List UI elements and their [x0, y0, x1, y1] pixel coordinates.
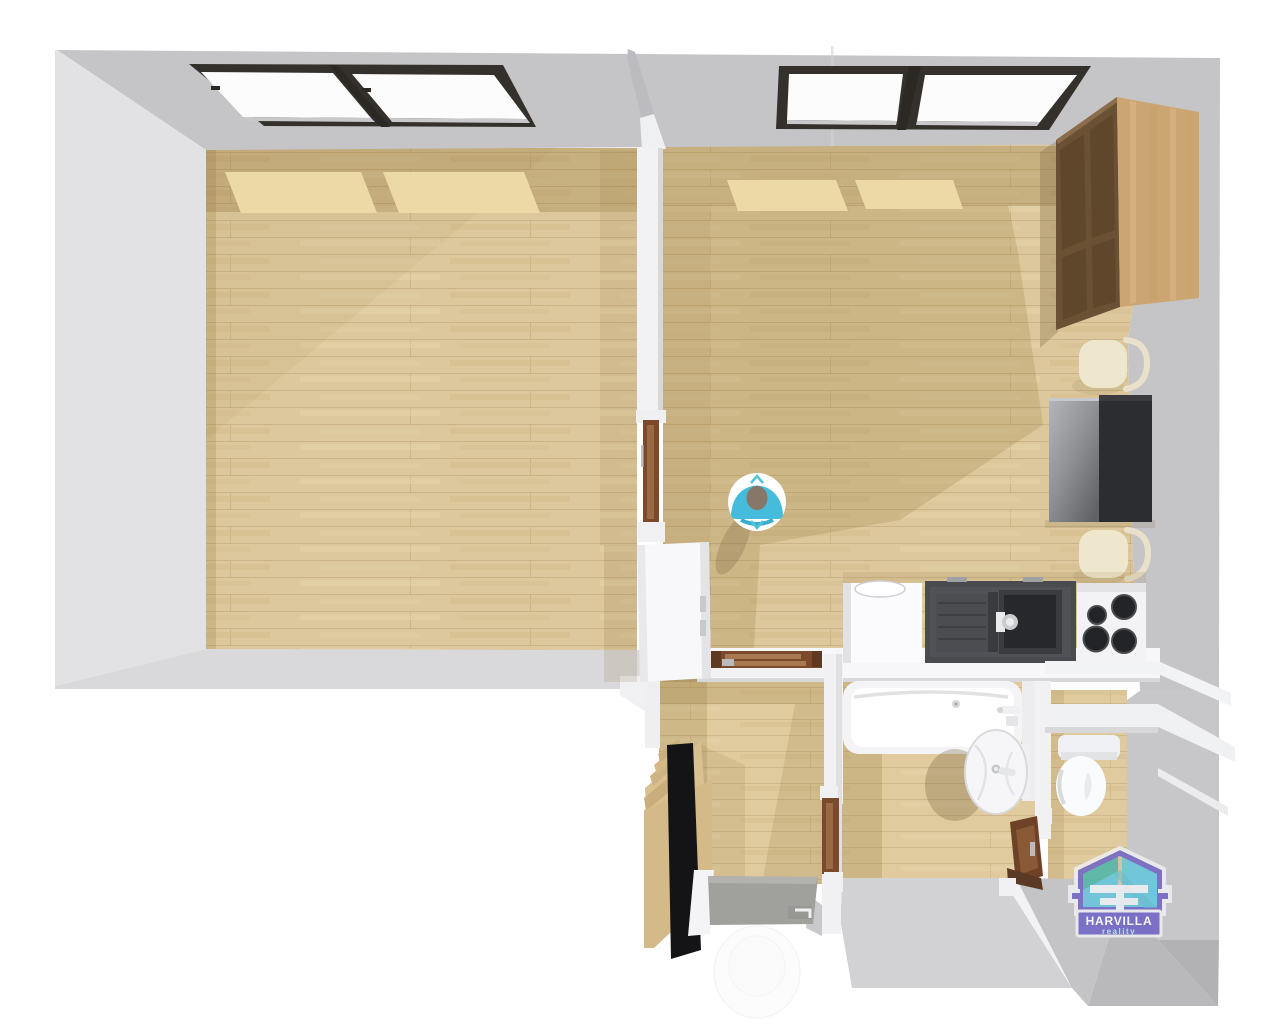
svg-text:HARVILLA: HARVILLA — [1086, 914, 1153, 928]
svg-text:reality: reality — [1102, 927, 1136, 936]
